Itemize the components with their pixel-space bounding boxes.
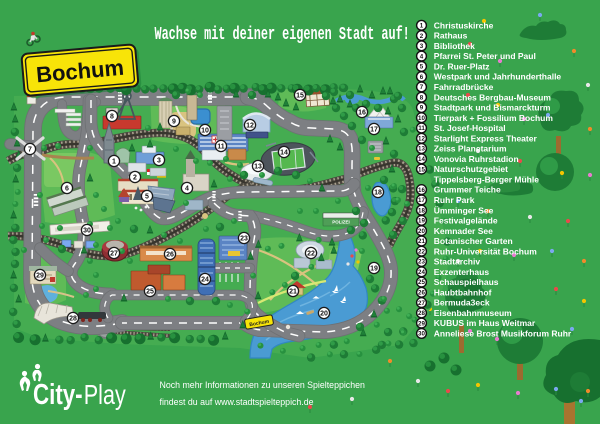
svg-text:Tippelsberg-Berger Mühle: Tippelsberg-Berger Mühle [434, 174, 539, 184]
svg-text:Ruhr Park: Ruhr Park [434, 195, 475, 205]
svg-text:Vonovia Ruhrstadion: Vonovia Ruhrstadion [434, 154, 519, 164]
svg-text:Stadtarchiv: Stadtarchiv [434, 257, 481, 267]
svg-text:25: 25 [146, 288, 154, 295]
svg-text:25: 25 [418, 279, 425, 286]
svg-text:1: 1 [112, 158, 116, 165]
svg-text:11: 11 [217, 143, 225, 150]
svg-text:Exzenterhaus: Exzenterhaus [434, 267, 490, 277]
svg-text:22: 22 [418, 248, 425, 255]
svg-text:Christuskirche: Christuskirche [434, 20, 494, 30]
svg-text:Pfarrei St. Peter und Paul: Pfarrei St. Peter und Paul [434, 51, 536, 61]
svg-text:Kemnader See: Kemnader See [434, 226, 493, 236]
svg-text:12: 12 [418, 136, 425, 143]
svg-text:17: 17 [370, 126, 378, 133]
svg-text:14: 14 [418, 156, 425, 163]
svg-text:Botanischer Garten: Botanischer Garten [434, 236, 513, 246]
svg-text:6: 6 [65, 185, 69, 192]
svg-text:15: 15 [418, 166, 425, 173]
svg-text:Zeiss Planetarium: Zeiss Planetarium [434, 144, 507, 154]
svg-text:Noch mehr Informationen zu uns: Noch mehr Informationen zu unseren Spiel… [160, 380, 365, 390]
svg-text:7: 7 [28, 146, 32, 153]
svg-text:Bermuda3eck: Bermuda3eck [434, 298, 490, 308]
svg-text:10: 10 [201, 127, 209, 134]
svg-text:4: 4 [185, 185, 189, 192]
svg-text:findest du auf www.stadtspielt: findest du auf www.stadtspielteppich.de [160, 397, 314, 407]
svg-text:Starlight Express Theater: Starlight Express Theater [434, 133, 538, 143]
svg-text:20: 20 [320, 310, 328, 317]
svg-text:Tierpark + Fossilium Bochum: Tierpark + Fossilium Bochum [434, 113, 554, 123]
svg-text:26: 26 [418, 290, 425, 297]
svg-text:22: 22 [307, 250, 315, 257]
svg-text:27: 27 [110, 250, 118, 257]
svg-text:3: 3 [157, 157, 161, 164]
svg-text:27: 27 [418, 300, 425, 307]
svg-text:8: 8 [110, 113, 114, 120]
svg-text:2: 2 [133, 174, 137, 181]
svg-text:Ruhr-Universität Bochum: Ruhr-Universität Bochum [434, 246, 537, 256]
svg-text:Eisenbahnmuseum: Eisenbahnmuseum [434, 308, 512, 318]
svg-text:Naturschutzgebiet: Naturschutzgebiet [434, 164, 508, 174]
svg-text:23: 23 [240, 235, 248, 242]
svg-text:Play: Play [84, 379, 126, 410]
svg-text:21: 21 [289, 288, 297, 295]
svg-text:26: 26 [166, 251, 174, 258]
svg-text:21: 21 [418, 238, 425, 245]
svg-text:Dr. Ruer-Platz: Dr. Ruer-Platz [434, 62, 490, 72]
svg-text:Ümminger See: Ümminger See [434, 205, 494, 215]
svg-text:Anneliese Brost Musikforum Ruh: Anneliese Brost Musikforum Ruhr [434, 329, 572, 339]
svg-text:18: 18 [418, 207, 425, 214]
svg-text:30: 30 [83, 227, 91, 234]
svg-text:24: 24 [201, 276, 209, 283]
svg-text:19: 19 [418, 218, 425, 225]
svg-text:Schauspielhaus: Schauspielhaus [434, 277, 499, 287]
svg-text:POLIZEI: POLIZEI [332, 220, 350, 225]
svg-text:Wachse mit deiner eigenen Stad: Wachse mit deiner eigenen Stadt auf! [155, 23, 410, 44]
svg-text:St. Josef-Hospital: St. Josef-Hospital [434, 123, 506, 133]
svg-text:15: 15 [296, 92, 304, 99]
svg-text:Haubtbahnhof: Haubtbahnhof [434, 287, 492, 297]
svg-text:Grummer Teiche: Grummer Teiche [434, 185, 501, 195]
svg-text:9: 9 [172, 118, 176, 125]
svg-text:Westpark und Jahrhunderthalle: Westpark und Jahrhunderthalle [434, 72, 562, 82]
svg-text:Festivalgelände: Festivalgelände [434, 216, 498, 226]
svg-text:Bibliothek: Bibliothek [434, 41, 475, 51]
svg-text:29: 29 [36, 272, 44, 279]
svg-text:13: 13 [254, 163, 262, 170]
svg-text:6: 6 [420, 74, 424, 81]
svg-text:10: 10 [418, 115, 425, 122]
svg-text:2: 2 [420, 33, 424, 40]
svg-text:13: 13 [418, 146, 425, 153]
svg-text:City-: City- [33, 379, 83, 410]
svg-text:30: 30 [418, 331, 425, 338]
svg-text:20: 20 [418, 228, 425, 235]
svg-text:Rathaus: Rathaus [434, 31, 468, 41]
svg-text:29: 29 [418, 320, 425, 327]
svg-text:19: 19 [370, 265, 378, 272]
svg-text:3: 3 [420, 43, 424, 50]
svg-text:11: 11 [418, 125, 425, 132]
svg-text:1: 1 [420, 23, 424, 30]
svg-text:24: 24 [418, 269, 425, 276]
svg-text:12: 12 [246, 122, 254, 129]
svg-text:18: 18 [374, 189, 382, 196]
svg-text:17: 17 [418, 197, 425, 204]
svg-text:23: 23 [418, 259, 425, 266]
svg-text:7: 7 [420, 84, 424, 91]
svg-text:KUBUS im Haus Weitmar: KUBUS im Haus Weitmar [434, 318, 536, 328]
svg-text:28: 28 [418, 310, 425, 317]
svg-text:16: 16 [358, 109, 366, 116]
svg-text:Fahrradbrücke: Fahrradbrücke [434, 82, 494, 92]
svg-text:8: 8 [420, 94, 424, 101]
svg-text:Stadtpark und Bismarckturm: Stadtpark und Bismarckturm [434, 103, 551, 113]
svg-text:28: 28 [69, 315, 77, 322]
svg-text:16: 16 [418, 187, 425, 194]
svg-text:Deutsches Bergbau-Museum: Deutsches Bergbau-Museum [434, 92, 552, 102]
svg-text:14: 14 [280, 149, 288, 156]
svg-text:9: 9 [420, 105, 424, 112]
svg-text:5: 5 [420, 64, 424, 71]
svg-text:4: 4 [420, 53, 424, 60]
svg-text:5: 5 [145, 193, 149, 200]
